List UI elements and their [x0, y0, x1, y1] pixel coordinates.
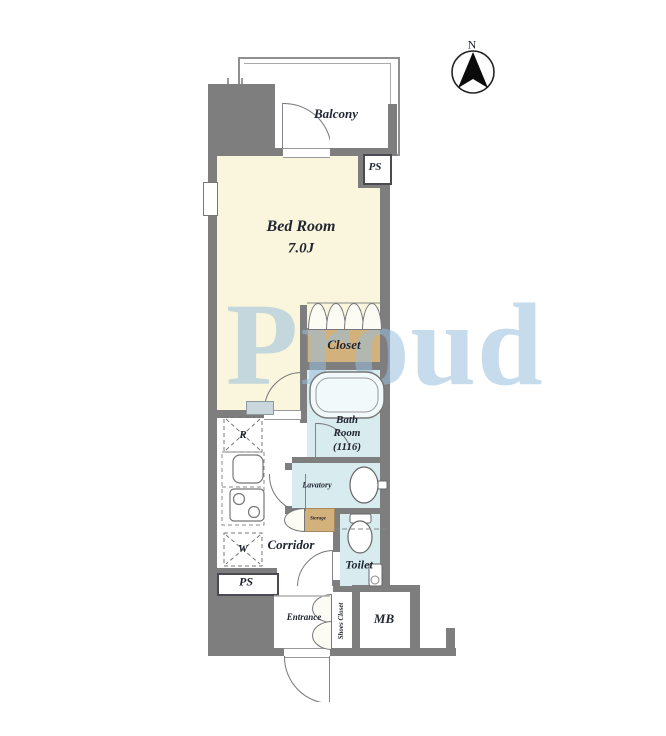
floor-plan-canvas: Proud — [0, 0, 666, 736]
lavatory-sink — [350, 467, 387, 503]
bathroom-label-line2: Room — [334, 427, 361, 439]
closet-label: Closet — [327, 337, 360, 353]
entrance-label: Entrance — [287, 612, 322, 622]
lavatory-label: Lavatory — [302, 481, 331, 490]
toilet-fixture — [348, 514, 372, 553]
meter-box-label: MB — [374, 611, 394, 627]
storage-label: Storage — [310, 517, 326, 522]
kitchen-sink — [233, 455, 263, 483]
washer-label: W — [238, 543, 248, 555]
compass-north-label: N — [468, 38, 477, 53]
bathtub — [310, 372, 384, 418]
stove — [230, 489, 264, 521]
bedroom-size-label: 7.0J — [288, 241, 314, 258]
toilet-label: Toilet — [345, 558, 373, 573]
ps-top-label: PS — [369, 161, 382, 173]
bathroom-label-line1: Bath — [336, 414, 358, 426]
refrigerator-label: R — [239, 429, 246, 441]
bedroom-label: Bed Room — [267, 218, 336, 236]
corridor-label: Corridor — [268, 537, 315, 553]
shoes-closet-label: Shoes Closet — [337, 603, 345, 640]
bathroom-label-line3: (1116) — [333, 441, 361, 453]
ps-bottom-label: PS — [239, 575, 253, 590]
balcony-label: Balcony — [314, 106, 358, 122]
compass-icon — [452, 51, 494, 93]
